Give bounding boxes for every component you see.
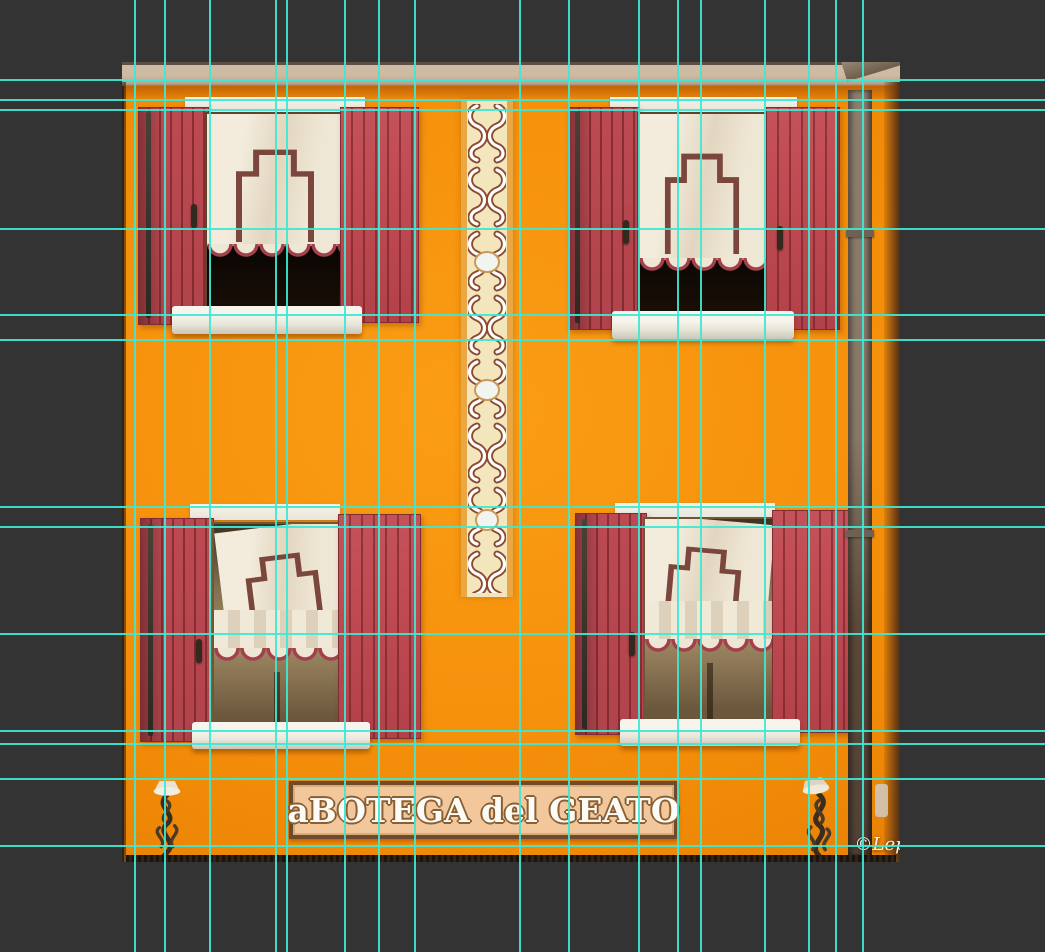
guide-vertical[interactable] xyxy=(275,0,277,952)
shutter-left xyxy=(575,513,647,735)
guide-horizontal[interactable] xyxy=(0,99,1045,101)
guide-vertical[interactable] xyxy=(164,0,166,952)
roof-band xyxy=(122,62,900,86)
guide-vertical[interactable] xyxy=(835,0,837,952)
scallop-trim xyxy=(214,648,341,672)
drainpipe xyxy=(848,90,872,856)
guide-horizontal[interactable] xyxy=(0,778,1045,780)
shutter-hinge xyxy=(146,112,151,318)
pipe-clamp xyxy=(846,530,874,537)
curtain-flounce xyxy=(214,610,341,648)
shop-sign: aBOTEGA del GEATO xyxy=(289,781,678,839)
shutter-right xyxy=(772,510,850,733)
guide-horizontal[interactable] xyxy=(0,109,1045,111)
shop-sign-text: aBOTEGA del GEATO xyxy=(287,791,679,830)
shutter-left xyxy=(568,107,640,330)
guide-vertical[interactable] xyxy=(209,0,211,952)
guide-vertical[interactable] xyxy=(286,0,288,952)
scroll-ornament-icon xyxy=(461,100,513,597)
guide-vertical[interactable] xyxy=(638,0,640,952)
guide-vertical[interactable] xyxy=(519,0,521,952)
guide-vertical[interactable] xyxy=(414,0,416,952)
shutter-hinge xyxy=(575,112,580,323)
photo-left-edge xyxy=(122,82,126,862)
window-sill xyxy=(620,719,800,746)
shutter-handle xyxy=(629,632,635,656)
guide-vertical[interactable] xyxy=(344,0,346,952)
scallop-trim xyxy=(645,639,775,663)
guide-horizontal[interactable] xyxy=(0,845,1045,847)
guide-vertical[interactable] xyxy=(808,0,810,952)
guide-horizontal[interactable] xyxy=(0,339,1045,341)
shutter-hinge xyxy=(148,524,153,736)
guide-vertical[interactable] xyxy=(134,0,136,952)
guide-horizontal[interactable] xyxy=(0,228,1045,230)
decorative-strip xyxy=(461,100,513,597)
guide-vertical[interactable] xyxy=(568,0,570,952)
shutter-right xyxy=(766,107,840,330)
editor-canvas: { "canvas": { "width": 1045, "height": 9… xyxy=(0,0,1045,952)
guide-vertical[interactable] xyxy=(677,0,679,952)
guide-horizontal[interactable] xyxy=(0,730,1045,732)
guide-horizontal[interactable] xyxy=(0,79,1045,81)
guide-vertical[interactable] xyxy=(378,0,380,952)
wall-patch xyxy=(875,784,888,817)
shutter-handle xyxy=(196,639,202,663)
guide-horizontal[interactable] xyxy=(0,743,1045,745)
shutter-left xyxy=(140,518,214,742)
photo-right-edge xyxy=(884,82,900,862)
window-opening xyxy=(643,517,777,733)
photo-bottom-edge xyxy=(126,855,896,862)
shutter-left xyxy=(138,107,209,325)
guide-vertical[interactable] xyxy=(700,0,702,952)
guide-horizontal[interactable] xyxy=(0,526,1045,528)
window-opening xyxy=(637,112,770,316)
shutter-handle xyxy=(623,220,629,244)
guide-horizontal[interactable] xyxy=(0,506,1045,508)
guide-horizontal[interactable] xyxy=(0,314,1045,316)
window-opening xyxy=(212,522,343,741)
photo: aBOTEGA del GEATO ©Lepore Rosario xyxy=(122,62,900,862)
guide-horizontal[interactable] xyxy=(0,633,1045,635)
guide-vertical[interactable] xyxy=(862,0,864,952)
window-sill xyxy=(172,306,362,334)
shutter-hinge xyxy=(582,519,587,729)
pipe-clamp xyxy=(846,230,874,237)
guide-vertical[interactable] xyxy=(764,0,766,952)
curtain-pattern-icon xyxy=(645,128,759,254)
curtain xyxy=(639,114,768,260)
wall-lamp-left xyxy=(138,778,196,862)
scallop-trim xyxy=(639,258,768,282)
shutter-handle xyxy=(191,204,197,228)
